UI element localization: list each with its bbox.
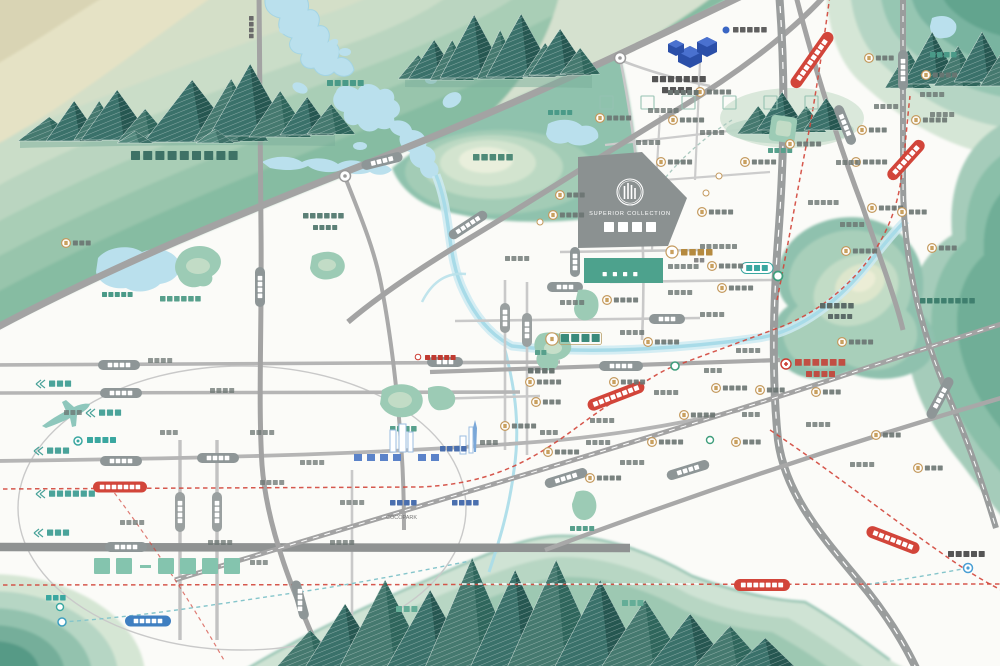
svg-text:SUPERIOR COLLECTION: SUPERIOR COLLECTION bbox=[589, 211, 671, 217]
svg-text:COCOPARK: COCOPARK bbox=[386, 515, 417, 521]
